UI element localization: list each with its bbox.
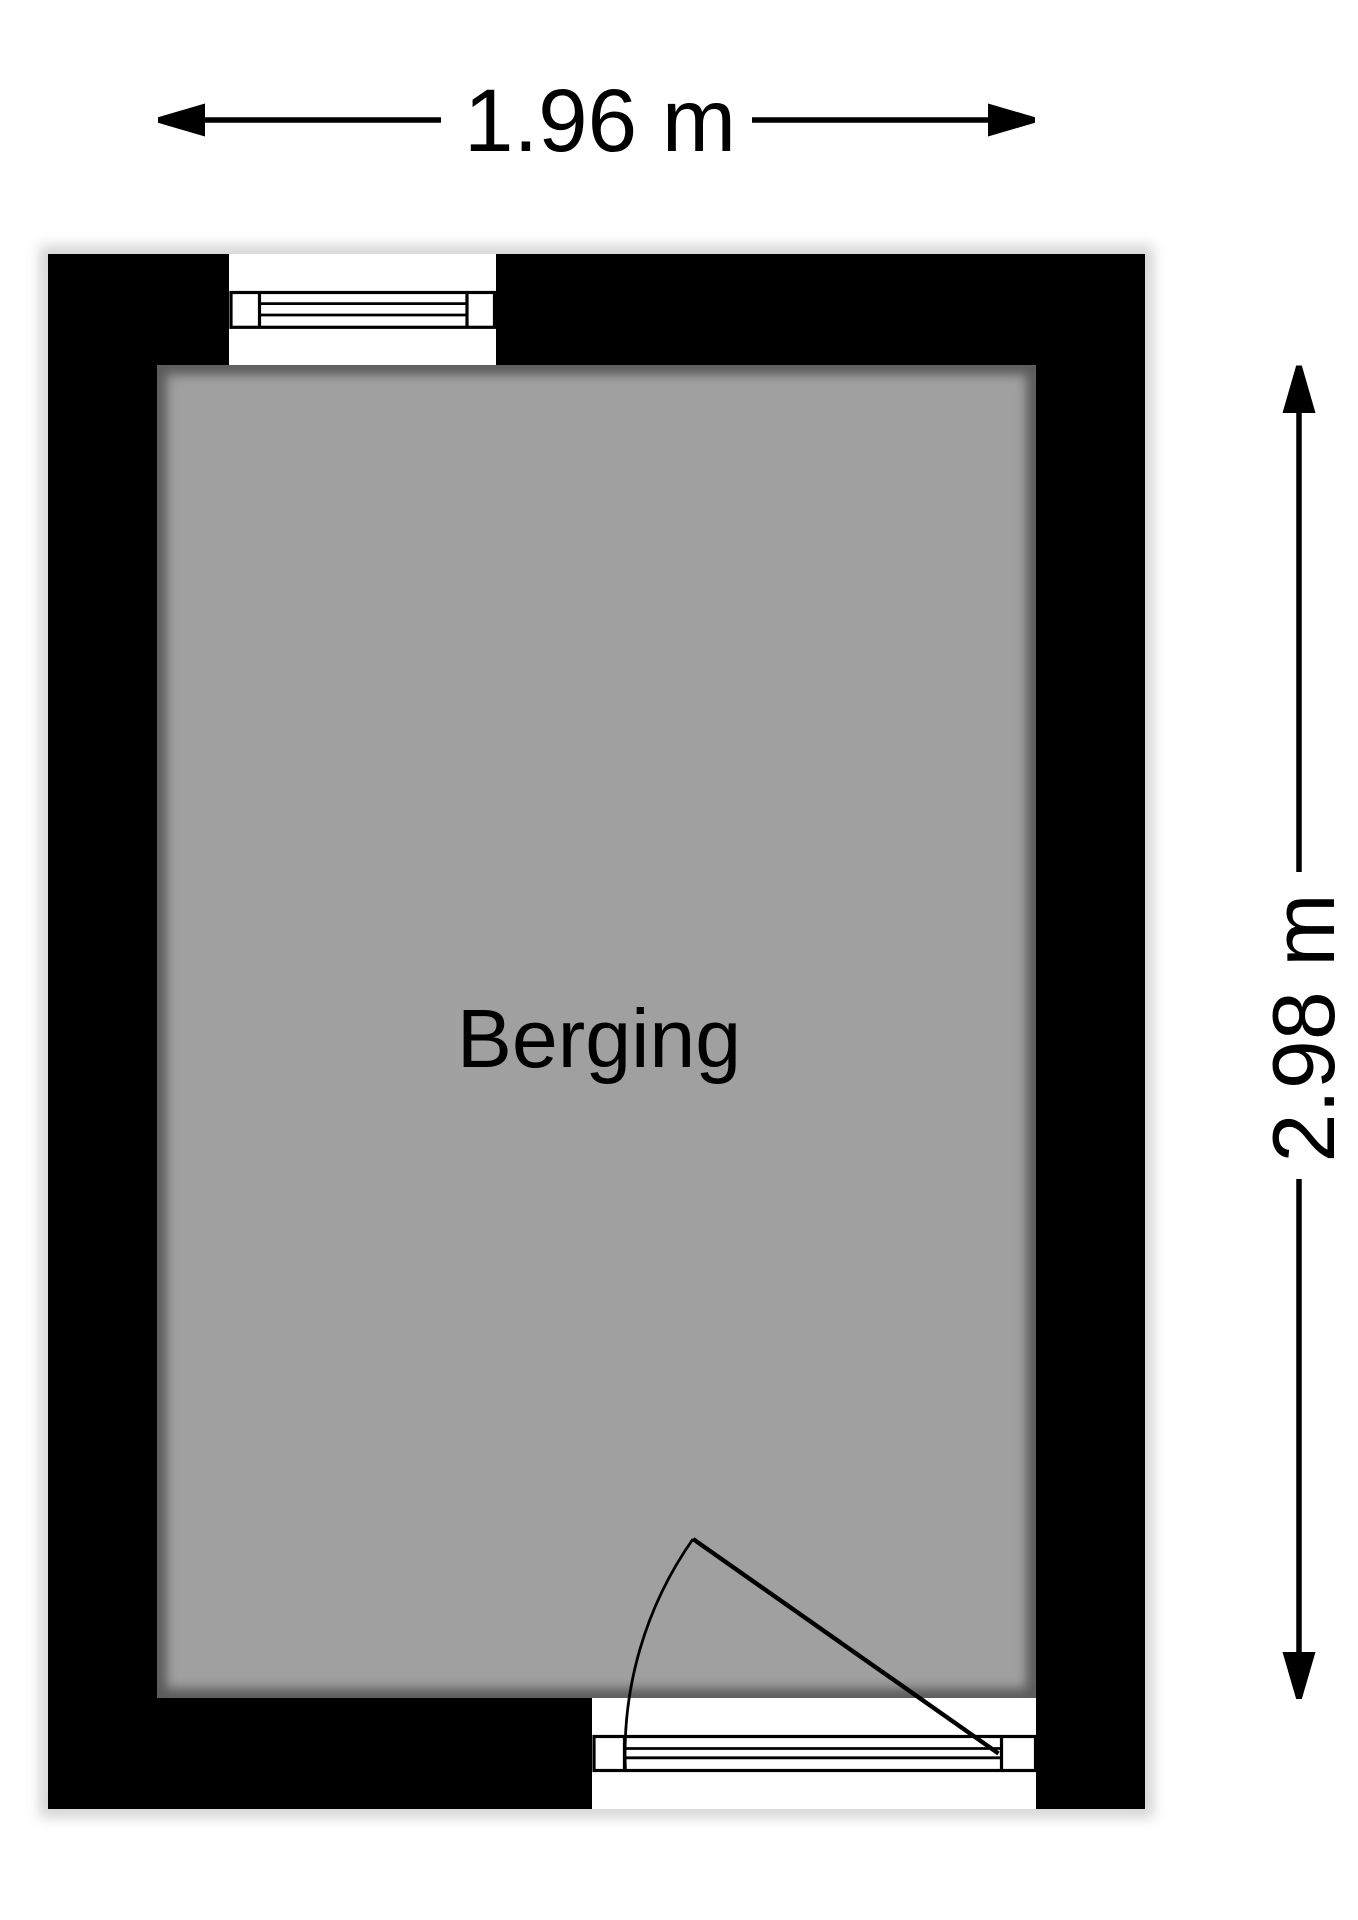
svg-text:1.96 m: 1.96 m: [464, 70, 736, 170]
svg-text:2.98 m: 2.98 m: [1254, 893, 1353, 1162]
svg-text:Berging: Berging: [457, 993, 741, 1085]
